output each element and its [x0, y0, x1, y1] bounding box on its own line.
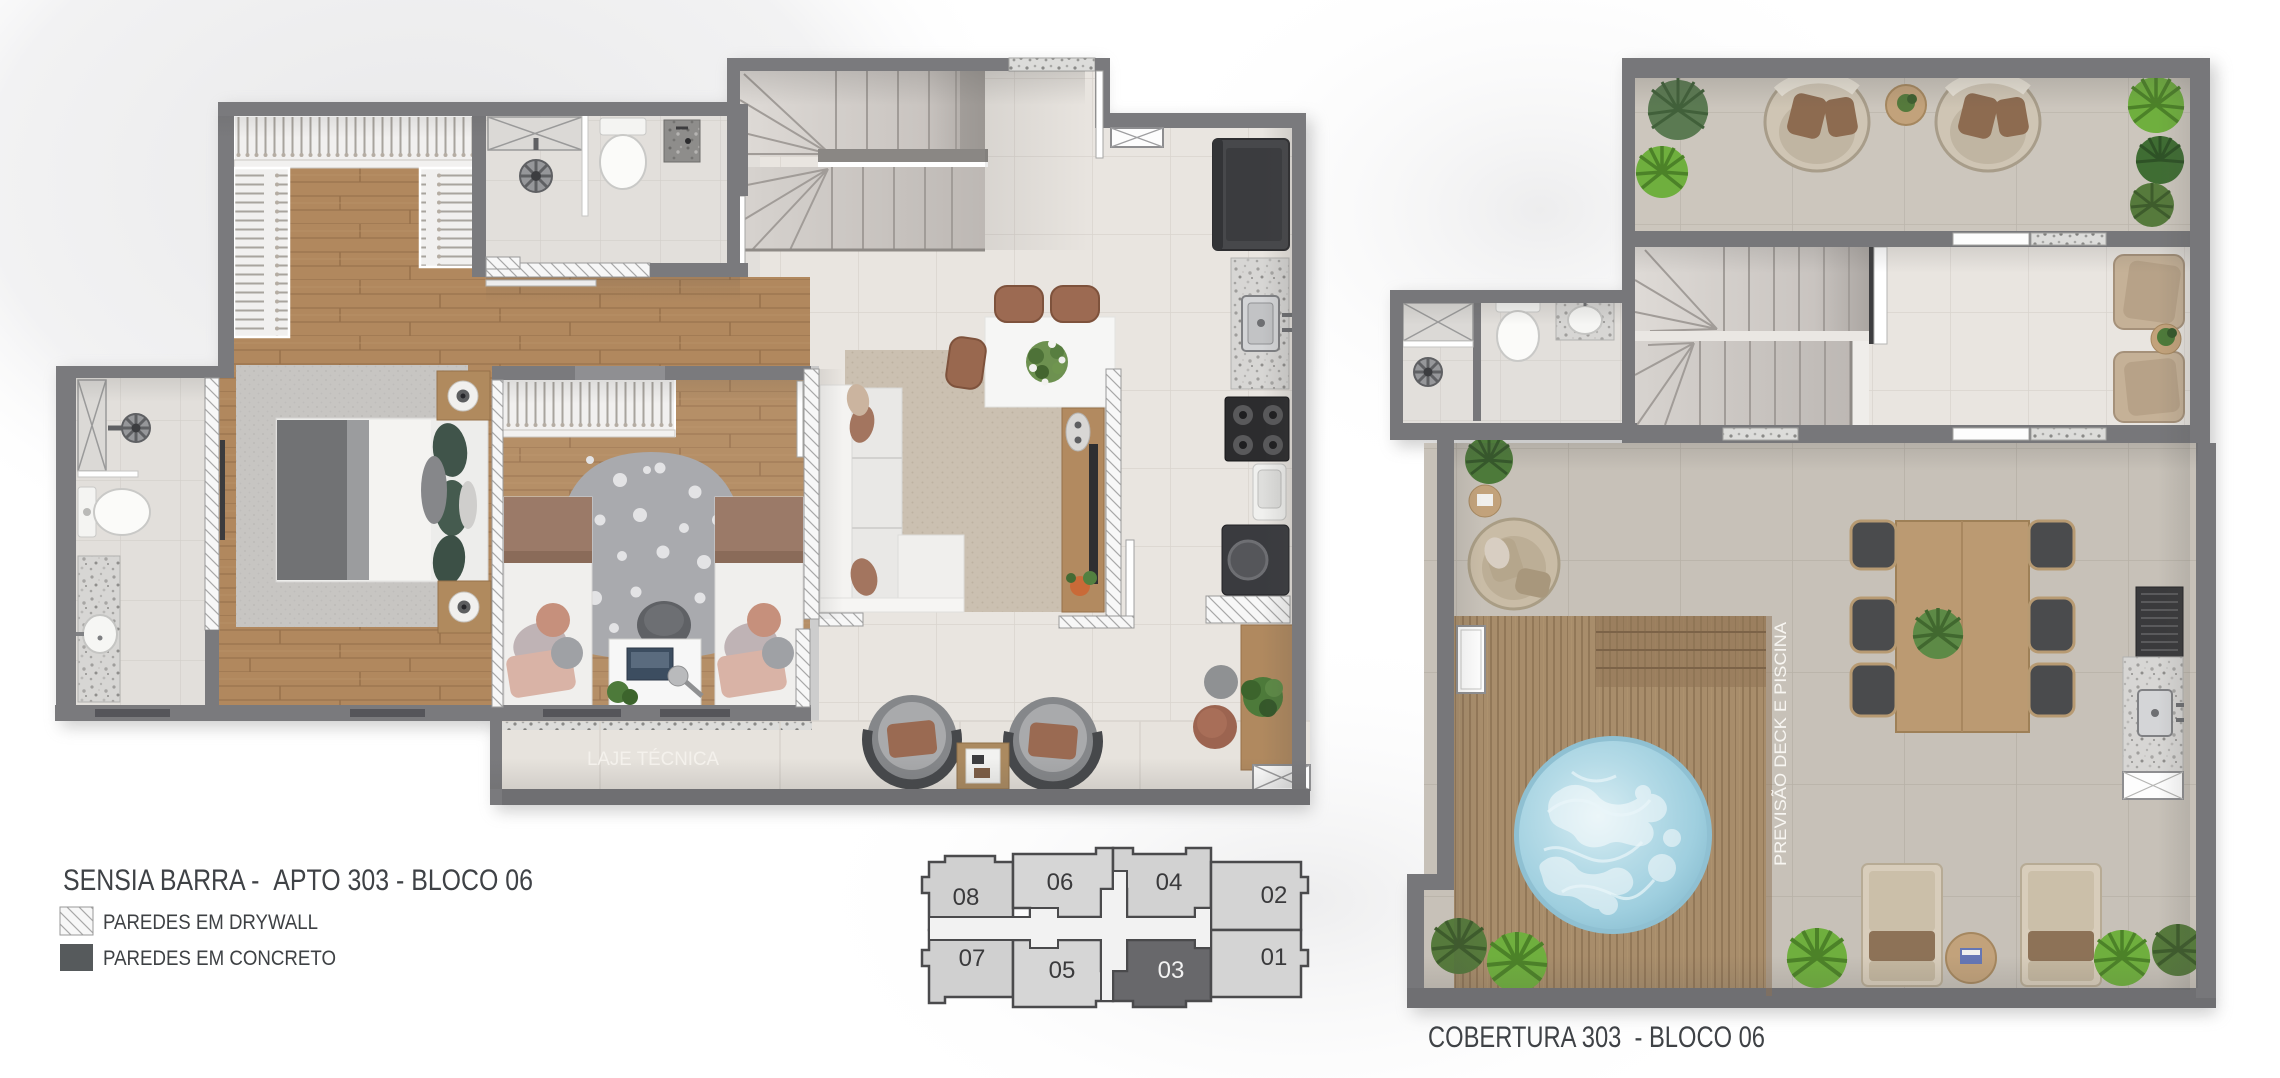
svg-text:04: 04 — [1156, 869, 1183, 896]
svg-text:08: 08 — [953, 884, 980, 911]
svg-text:PAREDES EM CONCRETO: PAREDES EM CONCRETO — [103, 947, 336, 970]
svg-text:LAJE TÉCNICA: LAJE TÉCNICA — [587, 749, 719, 770]
svg-text:PREVISÃO DECK E PISCINA: PREVISÃO DECK E PISCINA — [1771, 621, 1790, 866]
svg-text:02: 02 — [1261, 882, 1288, 909]
svg-text:06: 06 — [1047, 869, 1074, 896]
svg-text:01: 01 — [1261, 944, 1288, 971]
svg-text:PAREDES EM DRYWALL: PAREDES EM DRYWALL — [103, 911, 318, 934]
svg-text:SENSIA BARRA - APTO 303 - BLO: SENSIA BARRA - APTO 303 - BLOCO 06 — [63, 864, 533, 897]
svg-text:05: 05 — [1049, 957, 1076, 984]
svg-text:COBERTURA 303 - BLOCO 06: COBERTURA 303 - BLOCO 06 — [1428, 1021, 1765, 1054]
svg-text:03: 03 — [1158, 957, 1185, 984]
svg-text:07: 07 — [959, 945, 986, 972]
